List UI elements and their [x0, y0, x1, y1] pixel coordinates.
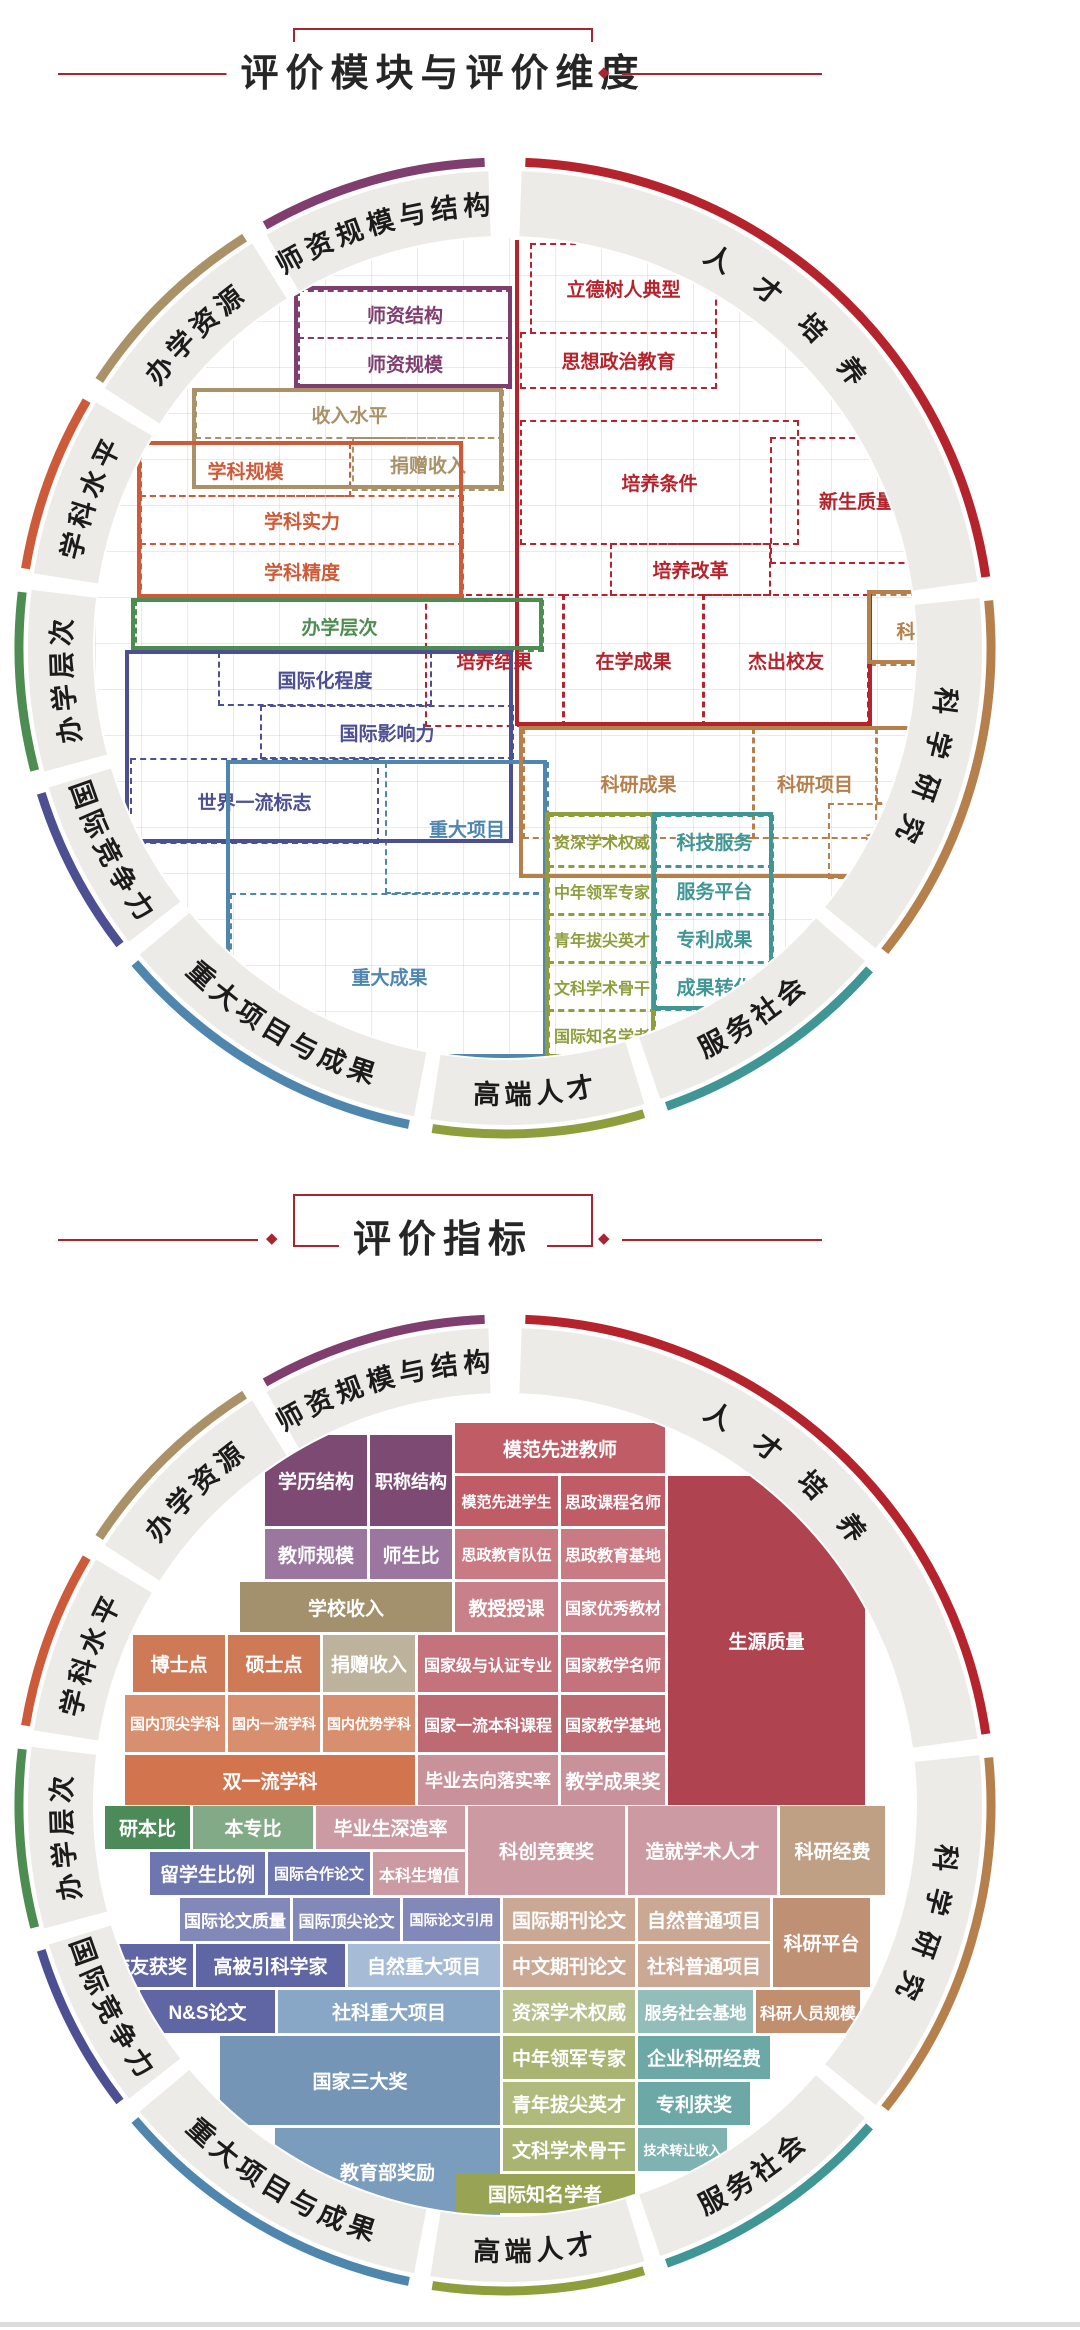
ring-segment: 办学层次 — [19, 1747, 107, 1929]
evaluation-wheel-modules: 人才培养科学研究服务社会高端人才重大项目与成果国际竞争力办学层次学科水平办学资源… — [0, 143, 1010, 1153]
title-rule-right — [622, 73, 822, 75]
section-title-2: ◆ 评价指标 ◆ — [0, 1166, 1080, 1266]
wheel1-cell: 世界一流标志 — [130, 758, 379, 844]
wheel1-cell: 科研人力 — [828, 803, 915, 879]
wheel2-cell: 模范先进教师 — [455, 1423, 665, 1473]
wheel2-cell: 国际顶尖论文 — [293, 1898, 400, 1941]
wheel2-cell: 国家级与认证专业 — [418, 1635, 558, 1692]
wheel2-cell: 双一流学科 — [125, 1755, 415, 1805]
wheel2-cell: 思政教育队伍 — [455, 1529, 558, 1579]
wheel2-cell: 中文期刊论文 — [503, 1944, 635, 1987]
wheel1-cell: 文科学术骨干 — [548, 962, 656, 1011]
wheel1-cell: 科研平台 — [876, 728, 915, 804]
wheel1-cell: 学科规模 — [140, 443, 351, 497]
wheel2-cell: 自然重大项目 — [348, 1944, 500, 1987]
wheel2-cell: 服务社会基地 — [638, 1990, 753, 2033]
wheel1-cell: 科研经费 — [870, 594, 915, 666]
wheel1-cell: 国际化程度 — [218, 652, 432, 706]
wheel2-cell: 国内优势学科 — [323, 1695, 415, 1752]
wheel2-cell: N&S论文 — [140, 1990, 275, 2033]
wheel2-cell: 师生比 — [370, 1529, 452, 1579]
wheel1-cell: 思想政治教育 — [520, 332, 717, 389]
wheel1-cell: 在学成果 — [563, 594, 704, 727]
wheel2-cell: 国家三大奖 — [220, 2036, 500, 2125]
wheel2-cell: 技术转让收入 — [638, 2128, 727, 2171]
footer-divider — [0, 2322, 1080, 2327]
wheel2-cell: 科创竞赛奖 — [468, 1806, 625, 1895]
wheel2-cell: 国内顶尖学科 — [125, 1695, 225, 1752]
wheel2-cell: 本科生增值 — [373, 1852, 465, 1895]
wheel1-cell: 专利成果 — [655, 914, 774, 963]
wheel2-cell: 资深学术权威 — [503, 1990, 635, 2033]
wheel2-cell: 文科学术骨干 — [503, 2128, 635, 2171]
title-rule-left — [58, 1239, 258, 1241]
title-rule-right — [622, 1239, 822, 1241]
wheel2-cell: 校友获奖 — [105, 1944, 193, 1987]
wheel1-cell: 服务平台 — [655, 866, 774, 915]
wheel2-cell: 模范先进学生 — [455, 1476, 558, 1526]
wheel1-cell: 中年领军专家 — [548, 866, 656, 915]
wheel2-cell: 学校收入 — [240, 1582, 452, 1632]
wheel2-cell: 企业科研经费 — [638, 2036, 770, 2079]
section-title: 评价指标 — [339, 1208, 547, 1263]
wheel1-cell: 新生质量 — [770, 437, 915, 564]
wheel2-cell: 科研人员规模 — [756, 1990, 860, 2033]
wheel2-cell: 科研经费 — [780, 1806, 885, 1895]
wheel2-cell: 教学成果奖 — [561, 1755, 665, 1805]
wheel2-cell: 本专比 — [193, 1806, 313, 1849]
wheel2-cell: 国际论文质量 — [180, 1898, 290, 1941]
wheel2-cell: 青年拔尖英才 — [503, 2082, 635, 2125]
wheel2-cell: 专利获奖 — [638, 2082, 750, 2125]
wheel2-cell: 国际知名学者 — [455, 2174, 635, 2213]
wheel1-cell: 师资结构 — [298, 290, 512, 339]
evaluation-wheel-indicators: 人才培养科学研究服务社会高端人才重大项目与成果国际竞争力办学层次学科水平办学资源… — [0, 1300, 1010, 2310]
page-title: 评价模块与评价维度 — [226, 42, 659, 97]
wheel2-cell: 思政课程名师 — [561, 1476, 665, 1526]
diamond-icon: ◆ — [598, 64, 610, 82]
wheel1-cell: 国际知名学者 — [548, 1010, 656, 1058]
wheel2-cell: 博士点 — [133, 1635, 225, 1692]
wheel2-cell: 社科普通项目 — [638, 1944, 770, 1987]
wheel1-cell: 资深学术权威 — [548, 815, 656, 867]
wheel1-cell: 青年拔尖英才 — [548, 914, 656, 963]
wheel2-cell: 思政教育基地 — [561, 1529, 665, 1579]
ring-segment: 办学层次 — [19, 590, 107, 772]
wheel1-cell: 捐赠收入 — [352, 437, 504, 491]
wheel1-cell: 学科精度 — [140, 543, 464, 600]
wheel-content: 师资结构师资规模立德树人典型思想政治教育培养条件培养改革新生质量培养结果在学成果… — [95, 238, 915, 1058]
wheel2-cell: 捐赠收入 — [323, 1635, 415, 1692]
wheel2-cell: 研本比 — [105, 1806, 190, 1849]
wheel1-cell: 杰出校友 — [703, 594, 869, 727]
wheel2-cell: 生源质量 — [668, 1476, 865, 1805]
wheel2-cell: 教授授课 — [455, 1582, 558, 1632]
wheel1-cell: 成果转化 — [655, 962, 774, 1011]
wheel2-cell: 留学生比例 — [150, 1852, 265, 1895]
wheel2-cell: 造就学术人才 — [628, 1806, 777, 1895]
wheel2-cell: 国家教学名师 — [561, 1635, 665, 1692]
wheel2-cell: 社科重大项目 — [278, 1990, 500, 2033]
wheel2-cell: 国家优秀教材 — [561, 1582, 665, 1632]
wheel1-cell: 重大成果 — [230, 893, 549, 1058]
wheel1-cell: 立德树人典型 — [530, 243, 717, 334]
wheel2-cell: 高被引科学家 — [196, 1944, 345, 1987]
wheel2-cell: 硕士点 — [228, 1635, 320, 1692]
diamond-icon: ◆ — [598, 1230, 610, 1248]
wheel2-cell: 科研平台 — [773, 1898, 870, 1987]
wheel1-cell: 办学层次 — [135, 600, 544, 652]
diamond-icon: ◆ — [266, 1230, 278, 1248]
wheel2-cell: 国家教学基地 — [561, 1695, 665, 1752]
wheel2-cell: 教师规模 — [265, 1529, 367, 1579]
wheel2-cell: 国际论文引用 — [403, 1898, 500, 1941]
wheel2-cell: 毕业生深造率 — [316, 1806, 465, 1849]
wheel1-cell: 收入水平 — [195, 390, 504, 439]
wheel1-cell: 培养改革 — [610, 543, 771, 596]
wheel2-cell: 学历结构 — [265, 1435, 367, 1526]
wheel1-cell: 培养条件 — [520, 420, 799, 545]
wheel2-cell: 职称结构 — [370, 1435, 452, 1526]
wheel1-cell: 师资规模 — [298, 337, 512, 389]
wheel2-cell: 毕业去向落实率 — [418, 1755, 558, 1805]
wheel2-cell: 国际合作论文 — [268, 1852, 370, 1895]
wheel1-cell: 学科实力 — [140, 495, 464, 545]
wheel2-cell: 国际期刊论文 — [503, 1898, 635, 1941]
wheel2-cell: 自然普通项目 — [638, 1898, 770, 1941]
wheel1-cell: 国际影响力 — [260, 705, 514, 759]
wheel2-cell: 中年领军专家 — [503, 2036, 635, 2079]
wheel2-cell: 国家一流本科课程 — [418, 1695, 558, 1752]
wheel-content: 模范先进教师学历结构职称结构模范先进学生思政课程名师教师规模师生比思政教育队伍思… — [95, 1395, 915, 2215]
section-title-1: ◆ 评价模块与评价维度 ◆ — [0, 0, 1080, 100]
infographic-page: ◆ 评价模块与评价维度 ◆ 人才培养科学研究服务社会高端人才重大项目与成果国际竞… — [0, 0, 1080, 2330]
wheel1-cell: 科技服务 — [655, 815, 774, 867]
wheel2-cell: 国内一流学科 — [228, 1695, 320, 1752]
